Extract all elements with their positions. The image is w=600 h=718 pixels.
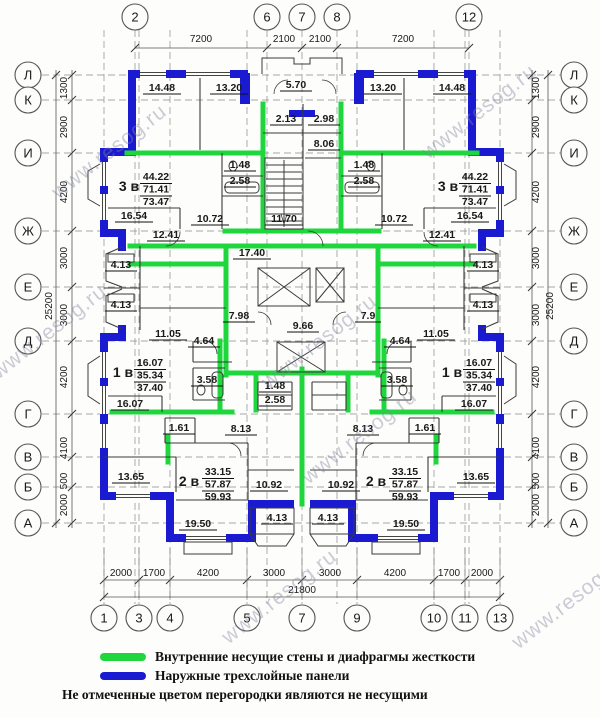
apartment-area-value: 35.34 (137, 370, 163, 382)
dimension-label: 4100 (59, 436, 70, 459)
window (100, 162, 108, 186)
axis-label: 12 (462, 10, 476, 25)
axis-circle-Г: Г (561, 401, 587, 427)
legend-note: Не отмеченные цветом перегородки являютс… (62, 687, 600, 703)
room-area-label: 10.72 (197, 213, 223, 225)
dimension-total-label: 25200 (545, 292, 556, 320)
room-area-label: 8.13 (353, 423, 374, 435)
room-area-label: 8.06 (314, 138, 335, 150)
axis-circle-5: 5 (234, 605, 260, 631)
room-area-label: 13.65 (118, 471, 144, 483)
axis-circle-Д: Д (561, 328, 587, 354)
dimension-label: 3000 (531, 246, 542, 269)
dimension-label: 2100 (309, 34, 332, 45)
dimension-label: 3000 (263, 568, 286, 579)
room-area-label: 10.72 (381, 213, 407, 225)
axis-label: 10 (427, 611, 441, 626)
toilet (197, 385, 205, 395)
dimension-label: 3000 (59, 303, 70, 326)
window (496, 352, 504, 378)
axis-label: А (24, 516, 33, 531)
window (140, 70, 166, 78)
legend-row-external-panels: Наружные трехслойные панели (100, 667, 600, 684)
room-area-label: 1.48 (354, 159, 375, 171)
apartment-label: 1 в16.0735.3437.40 (113, 357, 166, 394)
axis-circle-Е: Е (15, 274, 41, 300)
axis-circle-Д: Д (15, 328, 41, 354)
room-area-label: 2.98 (314, 113, 335, 125)
dimension-label: 2000 (531, 493, 542, 516)
dimension-label: 500 (59, 472, 70, 489)
dimension-label: 4200 (197, 568, 220, 579)
dimension-label: 7200 (190, 34, 213, 45)
room-area-label: 19.50 (393, 518, 419, 530)
axis-circle-9: 9 (344, 605, 370, 631)
dimension-total-label: 25200 (44, 292, 55, 320)
window (186, 70, 230, 78)
axis-label: А (570, 516, 579, 531)
apartment-area-value: 71.41 (143, 184, 169, 196)
axis-label: Д (570, 334, 579, 349)
axis-circle-Б: Б (561, 474, 587, 500)
elevator-shaft (316, 268, 344, 302)
axis-circle-6: 6 (254, 4, 280, 30)
room-area-label: 12.41 (153, 229, 179, 241)
external-wall (468, 70, 476, 154)
room-area-label: 1.48 (265, 380, 286, 392)
window (496, 162, 504, 186)
axis-circle-И: И (15, 140, 41, 166)
axis-label: 2 (131, 10, 138, 25)
room-area-label: 7.98 (229, 310, 250, 322)
room-area-label: 11.05 (423, 328, 449, 340)
external-wall (354, 73, 364, 104)
apartment-type-label: 2 в (179, 473, 200, 489)
apartment-area-value: 59.93 (205, 491, 231, 503)
axis-circle-Б: Б (15, 474, 41, 500)
room-area-label: 4.64 (390, 335, 411, 347)
window (100, 352, 108, 378)
room-area-label: 13.65 (463, 471, 489, 483)
axis-label: 7 (298, 10, 305, 25)
axis-label: 1 (100, 611, 107, 626)
axis-circle-Л: Л (561, 62, 587, 88)
axis-label: Ж (568, 224, 580, 239)
room-area-label: 1.61 (169, 422, 190, 434)
axis-label: 5 (243, 611, 250, 626)
window (186, 534, 226, 542)
apartment-area-value: 57.87 (205, 479, 231, 491)
external-wall (310, 500, 356, 508)
axis-circles: 267812134579101113ЛКИЖЕДГВБАЛКИЖЕДГВБА (15, 4, 587, 631)
axis-label: В (24, 450, 33, 465)
axis-label: Б (24, 480, 33, 495)
room-area-label: 2.58 (265, 394, 286, 406)
apartment-area-value: 35.34 (466, 370, 492, 382)
axis-circle-А: А (561, 510, 587, 536)
room-area-label: 16.07 (461, 398, 487, 410)
axis-circle-3: 3 (126, 605, 152, 631)
axis-circle-Ж: Ж (561, 218, 587, 244)
room-area-label: 4.13 (111, 299, 132, 311)
axis-circle-8: 8 (324, 4, 350, 30)
apartment-area-value: 16.07 (466, 357, 492, 369)
room-area-label: 2.58 (230, 175, 251, 187)
room-area-label: 1.48 (230, 159, 251, 171)
apartment-area-value: 59.93 (392, 491, 418, 503)
room-area-label: 4.13 (318, 512, 339, 524)
dimension-label: 1300 (531, 76, 542, 99)
room-area-label: 17.40 (239, 247, 265, 259)
dimension-label: 4200 (59, 365, 70, 388)
apartment-type-label: 3 в (119, 178, 140, 194)
axis-circle-А: А (15, 510, 41, 536)
axis-label: Г (24, 407, 31, 422)
room-area-label: 13.20 (370, 82, 396, 94)
room-area-label: 8.13 (231, 423, 252, 435)
room-area-label: 3.58 (387, 374, 408, 386)
axis-circle-К: К (561, 87, 587, 113)
room-area-label: 16.54 (457, 210, 483, 222)
apartment-label: 2 в33.1557.8759.93 (366, 466, 421, 503)
room-area-label: 3.58 (197, 374, 218, 386)
room-area-label: 19.50 (185, 518, 211, 530)
blue-wall-swatch (100, 672, 146, 680)
window (100, 386, 108, 414)
axis-label: 4 (166, 611, 173, 626)
axis-label: К (24, 93, 32, 108)
legend-label: Наружные трехслойные панели (155, 668, 349, 684)
axis-circle-1: 1 (91, 605, 117, 631)
room-area-label: 5.70 (286, 79, 307, 91)
dimension-label: 2900 (59, 115, 70, 138)
window (378, 534, 418, 542)
canopy (310, 534, 354, 546)
apartment-area-value: 73.47 (462, 196, 488, 208)
axis-circle-В: В (15, 444, 41, 470)
axis-circle-7: 7 (289, 4, 315, 30)
axis-circle-2: 2 (122, 4, 148, 30)
window (496, 424, 504, 448)
window (100, 424, 108, 448)
room-area-label: 7.9 (361, 310, 376, 322)
axis-label: 7 (298, 611, 305, 626)
dimension-label: 7200 (392, 34, 415, 45)
apartment-area-value: 44.22 (462, 171, 488, 183)
room-area-label: 2.58 (354, 175, 375, 187)
window (496, 194, 504, 220)
apartment-label: 3 в44.2271.4173.47 (119, 171, 172, 208)
room-area-label: 16.54 (121, 210, 147, 222)
external-wall (128, 70, 136, 154)
room-area-label: 4.13 (473, 299, 494, 311)
axis-circle-10: 10 (421, 605, 447, 631)
dimension-label: 2100 (273, 34, 296, 45)
floor-plan-page: 7200210021007200200017004200300030004200… (0, 0, 600, 718)
room-area-label: 11.70 (271, 213, 297, 225)
room-area-label: 4.13 (267, 512, 288, 524)
bay-window (88, 164, 100, 206)
external-wall (100, 148, 108, 237)
axis-circle-Л: Л (15, 62, 41, 88)
room-area-label: 1.61 (415, 422, 436, 434)
axis-label: Г (570, 407, 577, 422)
dimension-lines: 7200210021007200200017004200300030004200… (44, 34, 556, 601)
dimension-label: 2000 (59, 493, 70, 516)
axis-label: 6 (263, 10, 270, 25)
bay-window (88, 356, 100, 404)
apartment-area-value: 33.15 (205, 466, 231, 478)
room-area-label: 14.48 (149, 82, 175, 94)
dimension-label: 4200 (59, 180, 70, 203)
axis-label: Л (24, 68, 33, 83)
axis-label: Е (570, 280, 579, 295)
axis-circle-И: И (561, 140, 587, 166)
axis-circle-7: 7 (289, 605, 315, 631)
dimension-total-label: 21800 (288, 585, 316, 596)
window (438, 70, 464, 78)
room-area-label: 4.64 (194, 335, 215, 347)
room-area-label: 2.13 (276, 113, 297, 125)
axis-label: Д (24, 334, 33, 349)
room-area-label: 12.41 (429, 229, 455, 241)
apartment-area-value: 37.40 (137, 382, 163, 394)
axis-circle-К: К (15, 87, 41, 113)
window (100, 194, 108, 220)
apartment-area-value: 71.41 (462, 184, 488, 196)
axis-label: Е (24, 280, 33, 295)
axis-label: Б (570, 480, 579, 495)
axis-circle-Ж: Ж (15, 218, 41, 244)
apartment-area-value: 37.40 (466, 382, 492, 394)
axis-label: Л (570, 68, 579, 83)
apartment-type-label: 1 в (442, 364, 463, 380)
entrance-porch (184, 542, 232, 554)
axis-circle-11: 11 (452, 605, 478, 631)
dimension-label: 4200 (531, 365, 542, 388)
room-area-label: 13.20 (216, 82, 242, 94)
apartment-area-value: 73.47 (143, 196, 169, 208)
axis-label: 11 (458, 611, 472, 626)
dimension-label: 1700 (438, 568, 461, 579)
apartment-area-value: 16.07 (137, 357, 163, 369)
dimension-label: 2000 (471, 568, 494, 579)
bay-window (504, 164, 516, 206)
entrance-porch (372, 542, 420, 554)
legend-row-internal-walls: Внутренние несущие стены и диафрагмы жес… (100, 648, 600, 665)
apartment-label: 2 в33.1557.8759.93 (179, 466, 234, 503)
dimension-label: 1300 (59, 76, 70, 99)
bay-window (504, 356, 516, 404)
axis-label: В (570, 450, 579, 465)
window (496, 386, 504, 414)
axis-label: Ж (22, 224, 34, 239)
room-area-label: 10.92 (256, 479, 282, 491)
apartment-area-value: 57.87 (392, 479, 418, 491)
apartment-type-label: 2 в (366, 473, 387, 489)
axis-circle-В: В (561, 444, 587, 470)
axis-circle-Е: Е (561, 274, 587, 300)
window (454, 492, 488, 500)
dimension-label: 1700 (143, 568, 166, 579)
legend-label: Внутренние несущие стены и диафрагмы жес… (155, 649, 475, 665)
room-area-label: 4.13 (111, 259, 132, 271)
axis-circle-Г: Г (15, 401, 41, 427)
axis-label: К (570, 93, 578, 108)
axis-label: 9 (353, 611, 360, 626)
dimension-label: 3000 (531, 303, 542, 326)
apartment-label: 1 в16.0735.3437.40 (442, 357, 495, 394)
apartment-area-value: 44.22 (143, 171, 169, 183)
window (374, 70, 418, 78)
floor-plan-drawing: 7200210021007200200017004200300030004200… (0, 0, 600, 718)
dimension-label: 4100 (531, 436, 542, 459)
green-wall-swatch (100, 653, 146, 661)
dimension-label: 4200 (531, 180, 542, 203)
room-area-label: 4.13 (473, 259, 494, 271)
dimension-label: 2000 (110, 568, 133, 579)
axis-circle-13: 13 (487, 605, 513, 631)
axis-label: И (569, 146, 578, 161)
dimension-label: 3000 (319, 568, 342, 579)
apartment-type-label: 1 в (113, 364, 134, 380)
apartment-type-label: 3 в (438, 178, 459, 194)
axis-label: И (23, 146, 32, 161)
dimension-label: 3000 (59, 246, 70, 269)
axis-circle-4: 4 (157, 605, 183, 631)
room-area-label: 14.48 (439, 82, 465, 94)
room-area-label: 11.05 (155, 328, 181, 340)
room-area-label: 9.66 (293, 320, 314, 332)
room-area-label: 16.07 (117, 398, 143, 410)
axis-label: 8 (333, 10, 340, 25)
apartment-label: 3 в44.2271.4173.47 (438, 171, 491, 208)
dimension-label: 500 (531, 472, 542, 489)
room-area-label: 10.92 (328, 479, 354, 491)
apartment-area-value: 33.15 (392, 466, 418, 478)
legend: Внутренние несущие стены и диафрагмы жес… (0, 646, 600, 703)
external-wall (496, 148, 504, 237)
toilet (399, 385, 407, 395)
dimension-label: 2900 (531, 115, 542, 138)
window (116, 492, 150, 500)
axis-label: 3 (135, 611, 142, 626)
canopy (250, 534, 294, 546)
axis-label: 13 (493, 611, 507, 626)
dimension-label: 4200 (384, 568, 407, 579)
axis-circle-12: 12 (456, 4, 482, 30)
external-wall (248, 500, 294, 508)
